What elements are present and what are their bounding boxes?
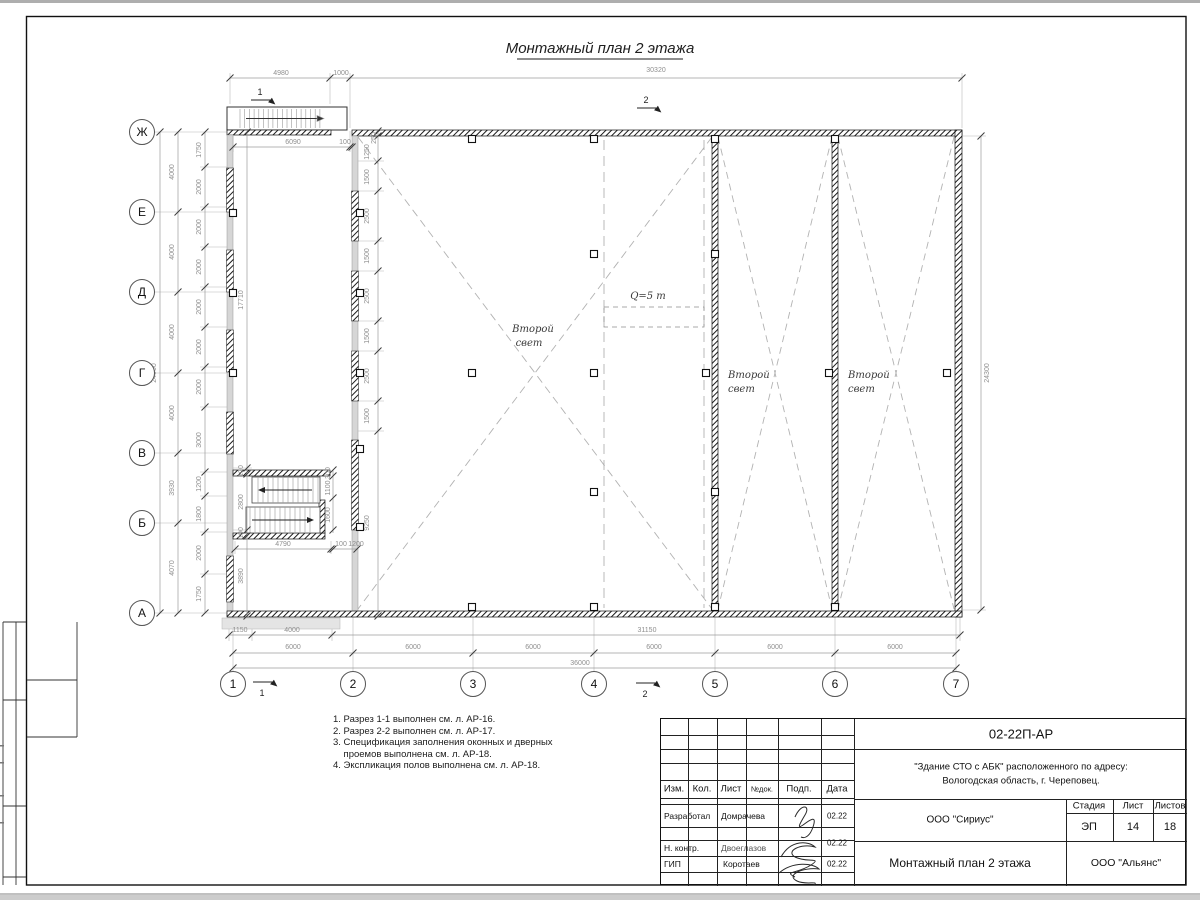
axis-label: 5 bbox=[712, 677, 719, 691]
axis-label: Б bbox=[138, 516, 146, 530]
col-podp: Подп. bbox=[786, 784, 811, 795]
column-mark bbox=[591, 489, 598, 496]
column-mark bbox=[712, 136, 719, 143]
dimension-label: 6000 bbox=[646, 644, 662, 651]
title-block-line bbox=[778, 719, 779, 886]
title-block-line bbox=[661, 840, 854, 841]
dimension-label: 30320 bbox=[646, 67, 666, 74]
plan-label: свет bbox=[728, 384, 755, 395]
dimension-label: 3000 bbox=[196, 432, 203, 448]
dimension-label: 2500 bbox=[364, 208, 371, 224]
column-mark bbox=[712, 251, 719, 258]
dimension-label: 100 bbox=[238, 465, 245, 477]
plan-label: свет bbox=[516, 338, 543, 349]
title-block-line bbox=[1113, 799, 1114, 841]
dimension-label: 2000 bbox=[196, 179, 203, 195]
dimension-label: 24300 bbox=[984, 363, 991, 383]
column-mark bbox=[712, 604, 719, 611]
doc-number: 02-22П-АР bbox=[989, 727, 1053, 742]
title-block-line bbox=[661, 735, 854, 736]
dimension-label: 4000 bbox=[169, 164, 176, 180]
sheet-label: Лист bbox=[1123, 801, 1144, 812]
crane-bridge bbox=[604, 307, 704, 327]
title-block-line bbox=[1153, 799, 1154, 841]
title-block-line bbox=[661, 827, 854, 828]
section-arrow-icon bbox=[654, 106, 663, 115]
dimension-label: 6000 bbox=[405, 644, 421, 651]
title-block-line bbox=[661, 872, 854, 873]
dimension-label: 31150 bbox=[638, 627, 657, 634]
col-list: Лист bbox=[721, 784, 742, 795]
margin-strip bbox=[3, 622, 77, 885]
column-mark bbox=[469, 604, 476, 611]
column-mark bbox=[591, 136, 598, 143]
axis-bubbles: ЖЕДГВБА1234567 bbox=[130, 120, 969, 697]
title-block-line bbox=[661, 749, 854, 750]
dimension-label: 1250 bbox=[364, 144, 371, 160]
dimension-label: 100 bbox=[339, 139, 351, 146]
drawing-sheet: 4980100030320609010025012501500250015002… bbox=[0, 0, 1200, 900]
dimension-label: 4980 bbox=[273, 70, 289, 77]
axis-label: Д bbox=[138, 285, 146, 299]
page-bottom-edge bbox=[0, 895, 1200, 900]
walls bbox=[222, 107, 962, 629]
plan-label: Второй bbox=[727, 370, 770, 381]
section-arrow-icon bbox=[270, 680, 279, 689]
dimension-label: 36000 bbox=[570, 660, 590, 667]
dimension-label: 4000 bbox=[169, 324, 176, 340]
dimension-label: 1750 bbox=[196, 586, 203, 602]
dimension-label: 2000 bbox=[196, 299, 203, 315]
axis-label: Ж bbox=[136, 125, 147, 139]
dimension-label: 6000 bbox=[887, 644, 903, 651]
dimension-label: 9250 bbox=[364, 515, 371, 531]
dimension-label: 6000 bbox=[285, 644, 301, 651]
name-developer: Домрачева bbox=[721, 811, 765, 821]
sheet-number: 14 bbox=[1127, 821, 1139, 833]
column-mark bbox=[832, 136, 839, 143]
dimension-label: 1800 bbox=[196, 506, 203, 522]
plan-label: свет bbox=[848, 384, 875, 395]
col-data: Дата bbox=[826, 784, 847, 795]
title-block-line bbox=[854, 719, 855, 886]
customer-org: ООО "Альянс" bbox=[1091, 857, 1161, 869]
dimension-label: 1200 bbox=[196, 476, 203, 492]
dimension-label: 1000 bbox=[333, 70, 349, 77]
note-line: 4. Экспликация полов выполнена см. л. АР… bbox=[333, 760, 553, 772]
dimension-label: 4070 bbox=[169, 560, 176, 576]
axis-label: Г bbox=[139, 366, 146, 380]
dimension-label: 250 bbox=[371, 132, 378, 144]
dimension-label: 1150 bbox=[232, 627, 247, 634]
column-mark bbox=[357, 446, 364, 453]
dimension-label: 1500 bbox=[364, 248, 371, 264]
dimension-label: 2000 bbox=[196, 379, 203, 395]
column-mark bbox=[591, 251, 598, 258]
column-mark bbox=[357, 524, 364, 531]
column-mark bbox=[230, 210, 237, 217]
dimension-label: 17710 bbox=[238, 290, 245, 310]
column-mark bbox=[944, 370, 951, 377]
note-line: 3. Спецификация заполнения оконных и две… bbox=[333, 737, 553, 749]
section-mark-label: 2 bbox=[643, 95, 648, 105]
axis-label: 3 bbox=[470, 677, 477, 691]
title-block: 02-22П-АР "Здание СТО с АБК" расположенн… bbox=[660, 718, 1186, 885]
axis-label: 4 bbox=[591, 677, 598, 691]
crane-rails bbox=[604, 140, 704, 608]
dimension-label: 4000 bbox=[169, 405, 176, 421]
axis-label: В bbox=[138, 446, 146, 460]
dimension-label: 1200 bbox=[348, 541, 364, 548]
axis-label: 2 bbox=[350, 677, 357, 691]
sheets-total: 18 bbox=[1164, 821, 1176, 833]
section-mark-label: 2 bbox=[642, 689, 647, 699]
dimension-label: 300 bbox=[325, 467, 332, 479]
note-line: 2. Разрез 2-2 выполнен см. л. АР-17. bbox=[333, 726, 553, 738]
axis-label: 6 bbox=[832, 677, 839, 691]
column-mark bbox=[230, 290, 237, 297]
notes-block: 1. Разрез 1-1 выполнен см. л. АР-16.2. Р… bbox=[333, 714, 553, 772]
note-line: проемов выполнена см. л. АР-18. bbox=[333, 749, 553, 761]
title-block-line bbox=[661, 856, 854, 857]
section-arrow-icon bbox=[268, 98, 277, 107]
dimension-label: 2000 bbox=[196, 259, 203, 275]
title-block-line bbox=[746, 719, 747, 886]
sheets-label: Листов bbox=[1155, 801, 1186, 812]
stairs bbox=[246, 477, 320, 533]
project-address-line2: Вологодская область, г. Череповец. bbox=[942, 776, 1099, 787]
axis-label: А bbox=[138, 606, 146, 620]
plan-label: Q=5 т bbox=[630, 291, 666, 302]
dimension-label: 1500 bbox=[364, 328, 371, 344]
section-mark-label: 1 bbox=[259, 688, 264, 698]
dimension-label: 1500 bbox=[364, 169, 371, 185]
top-wall-main bbox=[352, 130, 962, 136]
page-top-edge bbox=[0, 0, 1200, 3]
title-block-line bbox=[854, 749, 1187, 750]
title-block-line bbox=[717, 719, 718, 886]
dimension-label: 1500 bbox=[364, 408, 371, 424]
title-block-line bbox=[688, 719, 689, 886]
stage-value: ЭП bbox=[1081, 821, 1097, 833]
sheet-title: Монтажный план 2 этажа bbox=[506, 40, 695, 57]
note-line: 1. Разрез 1-1 выполнен см. л. АР-16. bbox=[333, 714, 553, 726]
role-gip: ГИП bbox=[664, 859, 681, 869]
axis-label: 1 bbox=[230, 677, 237, 691]
dimension-label: 4000 bbox=[169, 244, 176, 260]
column-mark bbox=[591, 604, 598, 611]
dimension-label: 2000 bbox=[196, 545, 203, 561]
column-mark bbox=[712, 489, 719, 496]
col-izm: Изм. bbox=[664, 784, 684, 795]
wall-axis5 bbox=[712, 136, 718, 611]
col-ndoc: №док. bbox=[751, 785, 773, 794]
dimension-label: 3890 bbox=[238, 568, 245, 584]
axis-label: Е bbox=[138, 205, 146, 219]
dimension-label: 100 bbox=[335, 541, 347, 548]
dimension-label: 2500 bbox=[364, 368, 371, 384]
dimension-label: 4000 bbox=[284, 627, 300, 634]
title-block-line bbox=[1066, 799, 1067, 886]
column-mark bbox=[357, 370, 364, 377]
role-ncontrol: Н. контр. bbox=[664, 843, 699, 853]
column-mark bbox=[832, 604, 839, 611]
dimension-label: 6000 bbox=[525, 644, 541, 651]
title-block-line bbox=[661, 780, 854, 781]
dimension-label: 1750 bbox=[196, 142, 203, 158]
developer-org: ООО "Сириус" bbox=[926, 815, 993, 826]
name-gip: Коротаев bbox=[723, 859, 760, 869]
col-kol: Кол. bbox=[693, 784, 712, 795]
bottom-wall bbox=[227, 611, 962, 617]
dimension-label: 2000 bbox=[196, 219, 203, 235]
title-block-line bbox=[854, 799, 1187, 800]
title-block-line bbox=[661, 763, 854, 764]
name-ncontrol: Двоеглазов bbox=[721, 843, 766, 853]
column-mark bbox=[357, 290, 364, 297]
dimension-label: 100 bbox=[238, 527, 245, 539]
column-marks bbox=[230, 136, 951, 611]
title-block-line bbox=[661, 798, 854, 799]
axis-label: 7 bbox=[953, 677, 960, 691]
title-block-line bbox=[1066, 813, 1187, 814]
column-mark bbox=[826, 370, 833, 377]
project-address-line1: "Здание СТО с АБК" расположенного по адр… bbox=[914, 762, 1127, 773]
section-arrow-icon bbox=[653, 681, 662, 690]
drawing-name: Монтажный план 2 этажа bbox=[889, 856, 1031, 870]
column-mark bbox=[469, 370, 476, 377]
dimension-label: 2500 bbox=[364, 288, 371, 304]
column-mark bbox=[703, 370, 710, 377]
section-mark-label: 1 bbox=[257, 87, 262, 97]
dimension-label: 6090 bbox=[285, 139, 301, 146]
section-marks: 1212 bbox=[251, 87, 663, 699]
top-wall-left bbox=[227, 130, 331, 135]
dimension-label: 1600 bbox=[325, 507, 332, 523]
dimension-labels: 4980100030320609010025012501500250015002… bbox=[151, 67, 991, 667]
title-block-line bbox=[821, 719, 822, 886]
column-mark bbox=[591, 370, 598, 377]
dimension-label: 3930 bbox=[169, 480, 176, 496]
column-mark bbox=[230, 370, 237, 377]
plan-label: Второй bbox=[511, 324, 554, 335]
dimension-label: 6000 bbox=[767, 644, 783, 651]
stage-label: Стадия bbox=[1073, 801, 1105, 812]
title-block-line bbox=[661, 804, 854, 805]
plan-label: Второй bbox=[847, 370, 890, 381]
dimension-label: 1100 bbox=[325, 480, 332, 495]
title-block-line bbox=[854, 841, 1187, 842]
dimension-label: 2800 bbox=[238, 494, 245, 510]
column-mark bbox=[357, 210, 364, 217]
dimension-label: 2000 bbox=[196, 339, 203, 355]
column-mark bbox=[469, 136, 476, 143]
dimension-label: 4790 bbox=[275, 541, 291, 548]
wall-axis7 bbox=[955, 130, 962, 617]
